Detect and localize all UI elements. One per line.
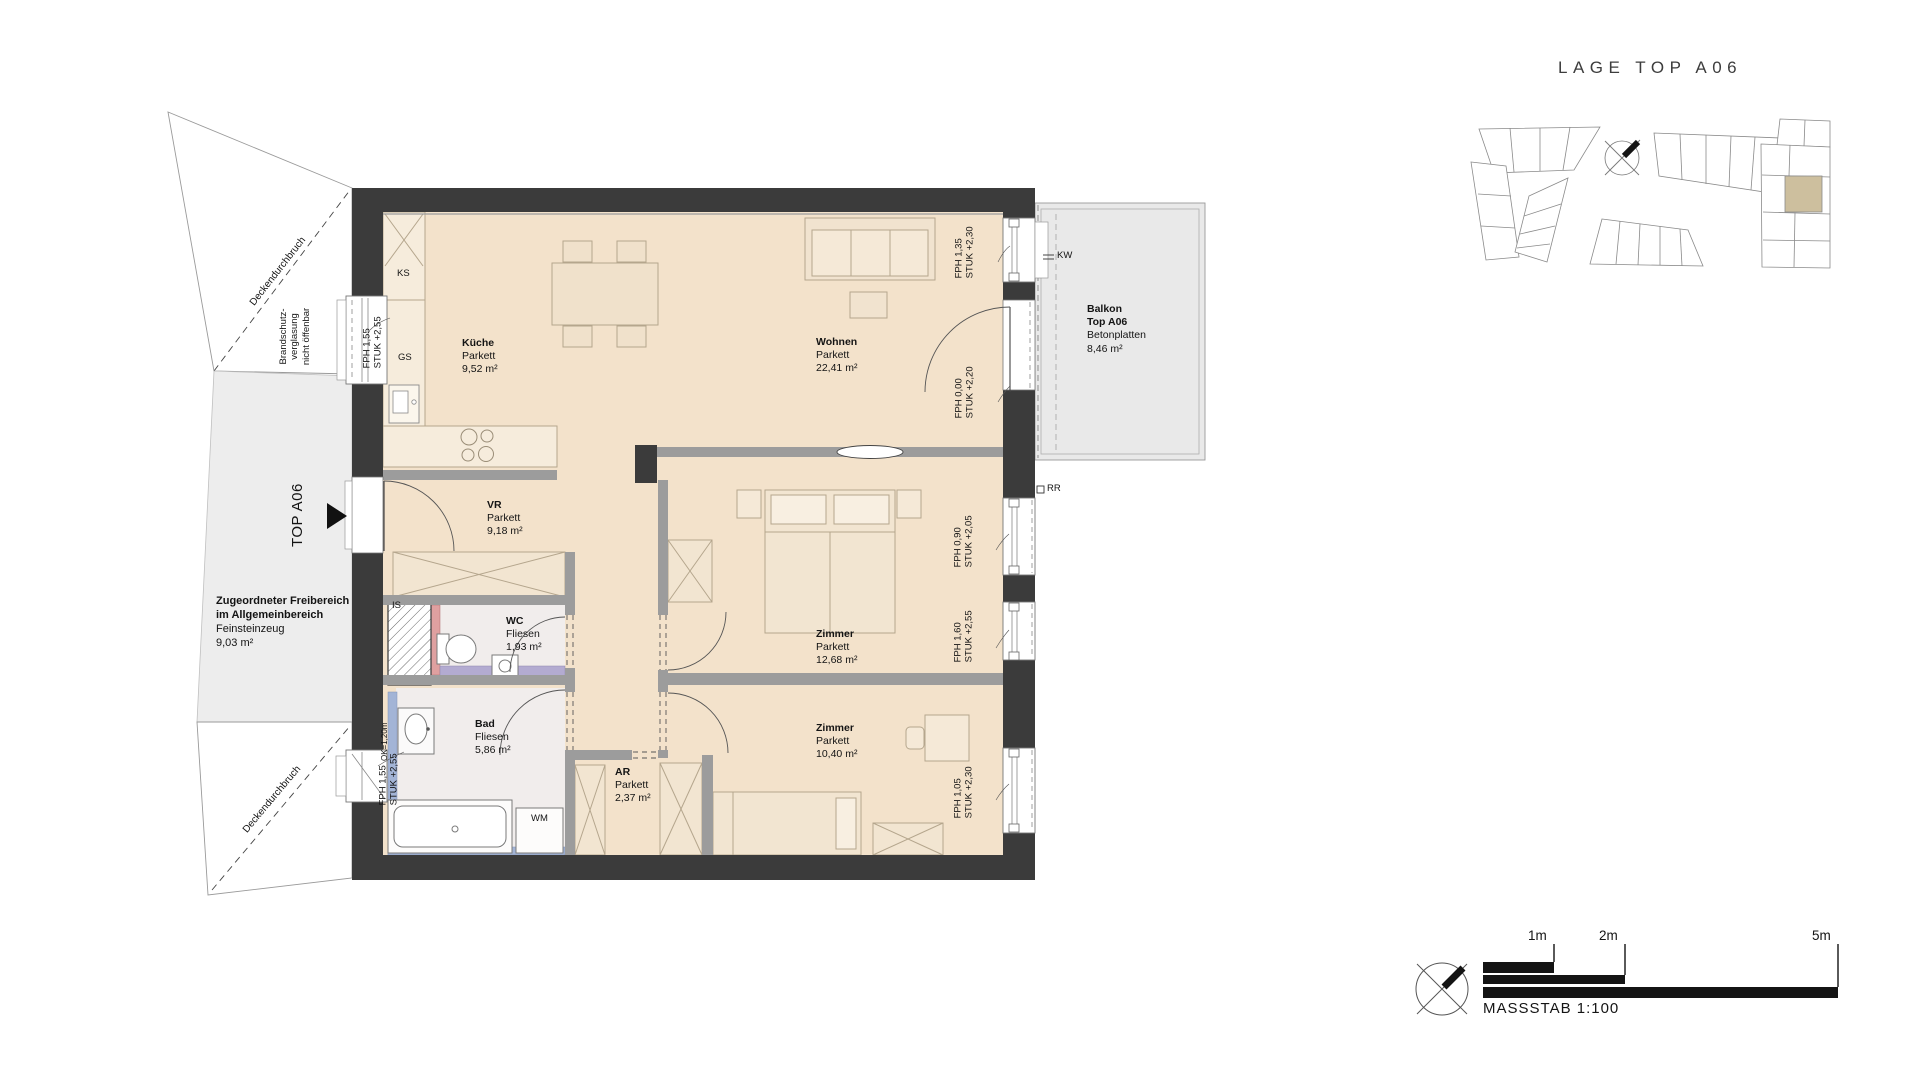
- chair: [563, 326, 592, 347]
- bad-washbasin: [398, 708, 434, 754]
- scale-caption: MASSSTAB 1:100: [1483, 1000, 1619, 1017]
- window-label-zimmer2: FPH 1,05 STUK +2,30: [953, 766, 975, 818]
- ks-label: KS: [397, 268, 410, 279]
- room-label-wc: WC Fliesen 1,93 m²: [506, 615, 542, 654]
- freibereich-area: [197, 371, 352, 722]
- rr-label: RR: [1047, 483, 1061, 494]
- scale-2m: 2m: [1599, 928, 1618, 943]
- chair: [617, 241, 646, 262]
- room-label-kueche: Küche Parkett 9,52 m²: [462, 337, 498, 376]
- tall-cabinet-ks: [383, 212, 425, 300]
- nightstand: [737, 490, 761, 518]
- site-compass: [1605, 140, 1640, 175]
- scale-5m: 5m: [1812, 928, 1831, 943]
- north-compass: [1416, 963, 1468, 1015]
- wc-basin: [492, 655, 518, 678]
- site-building-bottom: [1590, 219, 1703, 266]
- hall-wardrobe: [393, 552, 565, 597]
- room-label-zimmer1: Zimmer Parkett 12,68 m²: [816, 628, 857, 667]
- window-label-bad: FPH 1,55 STUK +2,55: [378, 753, 400, 805]
- bathtub: [388, 800, 512, 853]
- room-label-vr: VR Parkett 9,18 m²: [487, 499, 523, 538]
- ar-closet-left: [575, 765, 605, 855]
- ar-closet-right: [660, 763, 702, 855]
- floorplan-page: LAGE TOP A06 Küche Parkett 9,52 m² Wohne…: [0, 0, 1920, 1080]
- window-wohnen: [1003, 218, 1054, 282]
- window-zimmer1a: [1003, 498, 1035, 575]
- is-shaft: [388, 598, 431, 685]
- site-building-left: [1471, 127, 1600, 262]
- window-label-wohnen: FPH 1,35 STUK +2,30: [954, 226, 976, 278]
- wardrobe-low: [873, 823, 943, 855]
- entry-unit-label: TOP A06: [289, 483, 306, 547]
- desk: [925, 715, 969, 761]
- balcony-label: Balkon Top A06 Betonplatten 8,46 m²: [1087, 303, 1146, 356]
- window-label-zimmer1b: FPH 1,60 STUK +2,55: [953, 610, 975, 662]
- toilet: [437, 634, 476, 664]
- sliding-door-lens: [837, 446, 903, 459]
- wardrobe: [668, 540, 712, 602]
- scale-bar: [1416, 944, 1838, 1015]
- is-label: IS: [392, 600, 401, 611]
- rr-symbol: [1037, 486, 1044, 493]
- chair: [617, 326, 646, 347]
- window-label-kueche: FPH 1,55 STUK +2,55: [362, 316, 384, 368]
- freibereich-label: Zugeordneter Freibereich im Allgemeinber…: [216, 595, 349, 650]
- site-plan-title: LAGE TOP A06: [1558, 58, 1742, 78]
- chair: [563, 241, 592, 262]
- site-highlight-unit: [1785, 176, 1822, 212]
- room-label-wohnen: Wohnen Parkett 22,41 m²: [816, 336, 857, 375]
- apartment-floor: [383, 212, 1003, 855]
- window-label-balkontuer: FPH 0,00 STUK +2,20: [954, 366, 976, 418]
- dining-table: [552, 263, 658, 325]
- nightstand: [897, 490, 921, 518]
- site-plan: [1471, 119, 1830, 268]
- brandschutz-label: Brandschutz- verglasung nicht öffenbar: [278, 308, 312, 365]
- kw-label: KW: [1057, 250, 1072, 261]
- coffee-table: [850, 292, 887, 318]
- room-label-ar: AR Parkett 2,37 m²: [615, 766, 651, 805]
- ceiling-opening-zone-top: [168, 112, 352, 374]
- desk-chair: [906, 727, 924, 749]
- outdoor-zones: [168, 112, 352, 895]
- scale-1m: 1m: [1528, 928, 1547, 943]
- room-label-zimmer2: Zimmer Parkett 10,40 m²: [816, 722, 857, 761]
- ceiling-opening-zone-bottom: [197, 722, 352, 895]
- ok-height-label: OK=1,20m: [380, 723, 389, 761]
- window-zimmer2: [1003, 748, 1035, 833]
- window-label-zimmer1a: FPH 0,90 STUK +2,05: [953, 515, 975, 567]
- wm-label: WM: [516, 813, 563, 824]
- gs-label: GS: [398, 352, 412, 363]
- room-label-bad: Bad Fliesen 5,86 m²: [475, 718, 511, 757]
